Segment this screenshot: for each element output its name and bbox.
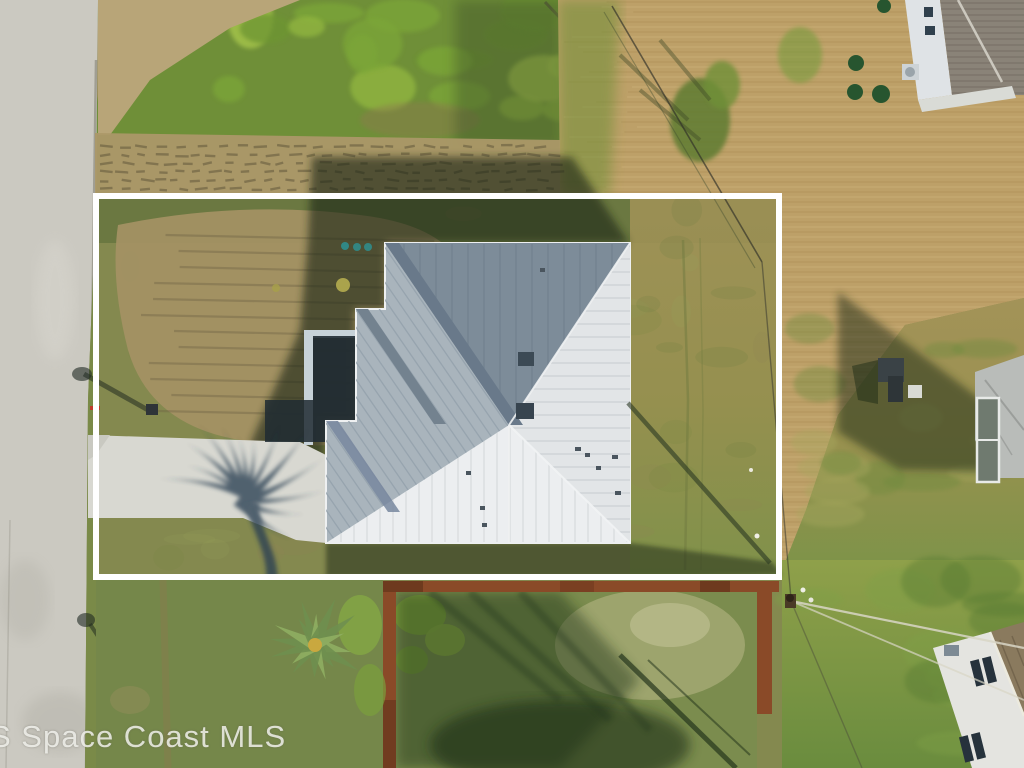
texture-blob bbox=[153, 545, 184, 571]
texture-blob bbox=[213, 76, 245, 103]
ac-unit bbox=[944, 645, 959, 656]
aerial-photo: S Space Coast MLS bbox=[0, 0, 1024, 768]
watermark: S Space Coast MLS bbox=[0, 719, 286, 755]
debris-speck bbox=[755, 534, 760, 539]
roof-vent bbox=[516, 403, 534, 419]
teal-utility-markers bbox=[341, 242, 372, 251]
weed-tuft bbox=[336, 278, 350, 292]
fenced-yard bbox=[394, 590, 757, 768]
texture-blob bbox=[659, 236, 693, 260]
texture-blob bbox=[183, 529, 240, 543]
texture-blob bbox=[656, 342, 683, 353]
texture-blob bbox=[785, 313, 834, 344]
roof-vent bbox=[518, 352, 534, 366]
texture-blob bbox=[883, 473, 961, 491]
texture-blob bbox=[288, 16, 325, 37]
weed-tuft bbox=[272, 284, 280, 292]
texture-blob bbox=[794, 366, 846, 402]
texture-blob bbox=[797, 501, 865, 527]
texture-blob bbox=[711, 286, 757, 299]
texture-blob bbox=[695, 347, 748, 368]
texture-blob bbox=[347, 35, 377, 74]
texture-blob bbox=[725, 442, 756, 458]
texture-blob bbox=[821, 451, 861, 474]
neighbor1-window bbox=[924, 7, 933, 17]
photo-canvas bbox=[0, 0, 1024, 768]
texture-blob bbox=[636, 296, 660, 313]
texture-blob bbox=[901, 556, 970, 607]
texture-blob bbox=[791, 430, 837, 456]
debris-speck bbox=[749, 468, 753, 472]
texture-blob bbox=[952, 339, 1018, 358]
texture-blob bbox=[671, 295, 691, 327]
neighbor1-window bbox=[925, 26, 935, 35]
texture-blob bbox=[805, 478, 870, 505]
